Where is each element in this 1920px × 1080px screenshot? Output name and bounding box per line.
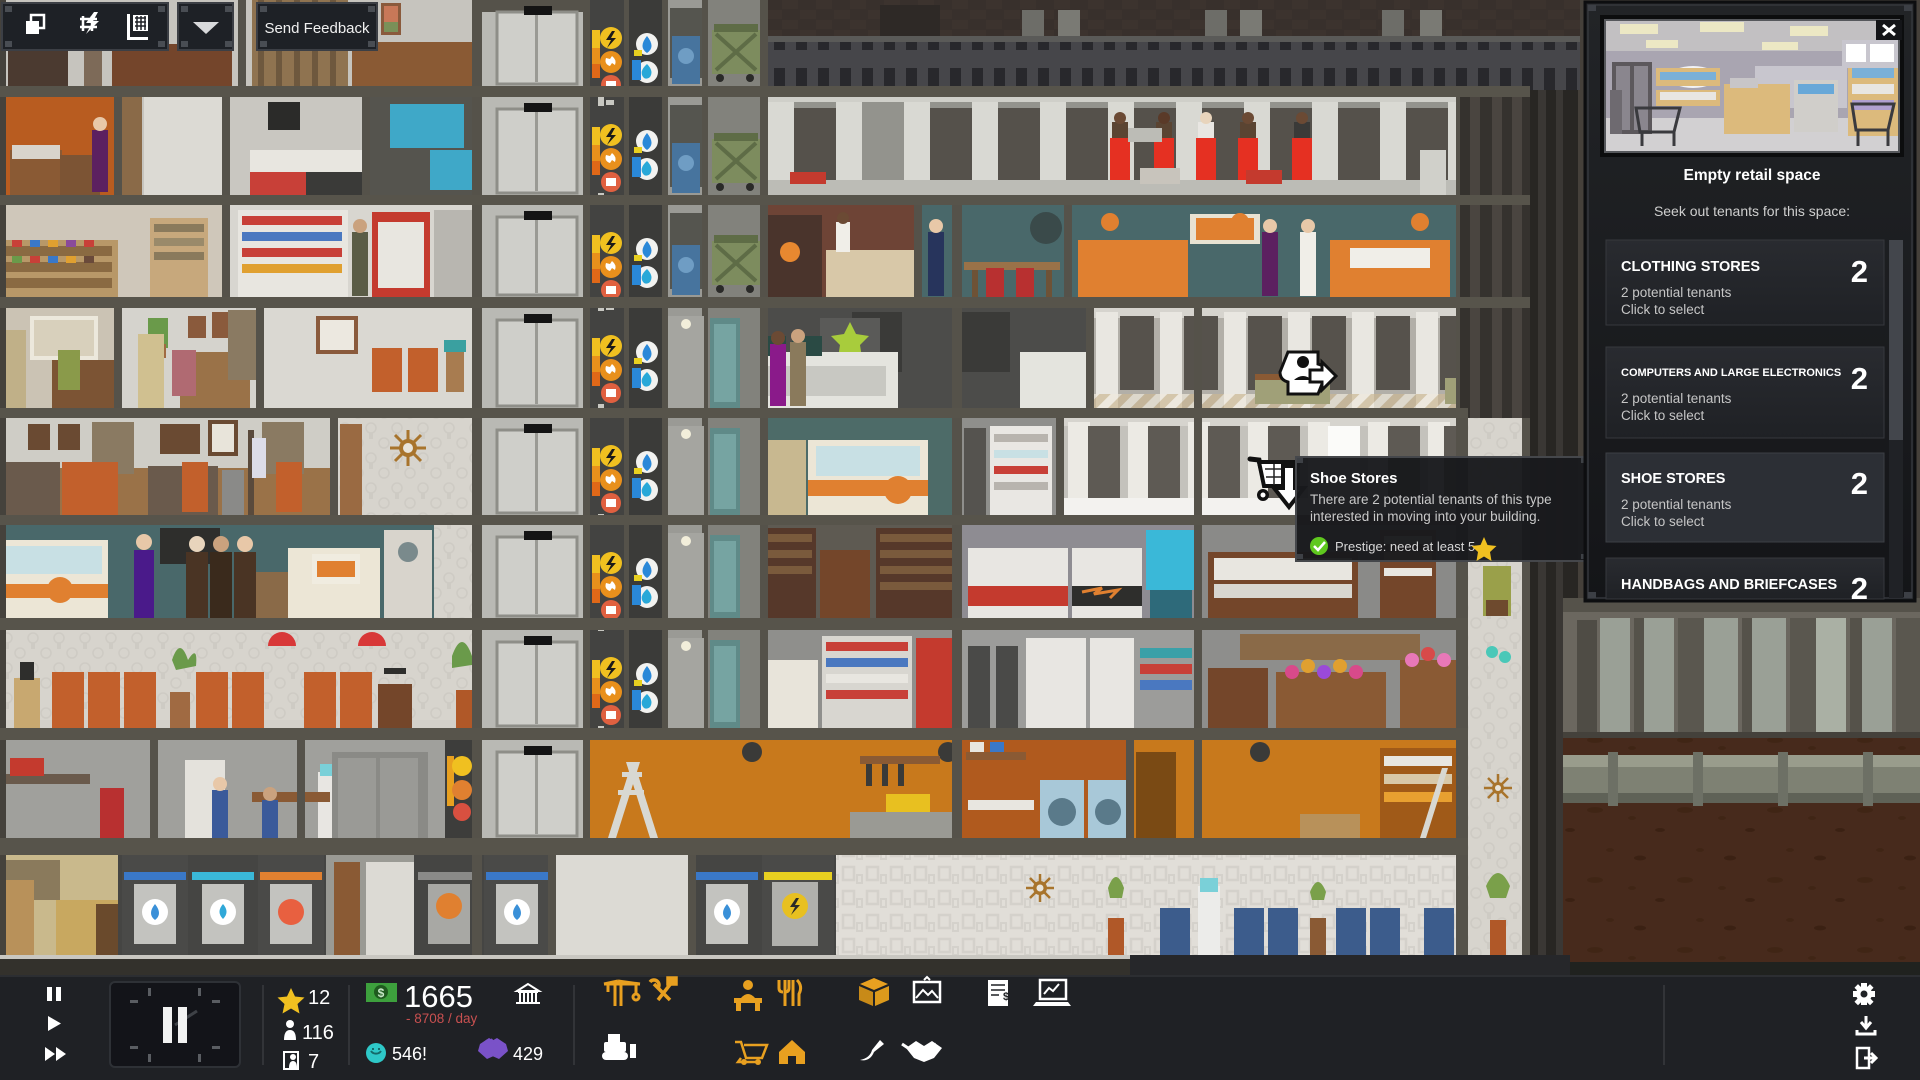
svg-text:116: 116 bbox=[302, 1022, 334, 1044]
svg-text:Click to select: Click to select bbox=[1621, 514, 1705, 529]
svg-text:Empty retail space: Empty retail space bbox=[1684, 167, 1821, 184]
svg-text:2 potential tenants: 2 potential tenants bbox=[1621, 391, 1732, 406]
svg-text:429: 429 bbox=[513, 1044, 543, 1064]
svg-text:1665: 1665 bbox=[404, 979, 473, 1014]
svg-text:interested in moving into your: interested in moving into your building. bbox=[1310, 509, 1540, 524]
svg-text:2 potential tenants: 2 potential tenants bbox=[1621, 285, 1732, 300]
svg-text:HANDBAGS AND BRIEFCASES: HANDBAGS AND BRIEFCASES bbox=[1621, 577, 1837, 593]
svg-text:There are 2 potential tenants: There are 2 potential tenants of this ty… bbox=[1310, 492, 1552, 507]
svg-text:Click to select: Click to select bbox=[1621, 408, 1705, 423]
svg-text:2: 2 bbox=[1851, 466, 1868, 501]
svg-text:2: 2 bbox=[1851, 571, 1868, 606]
svg-text:$: $ bbox=[1003, 991, 1009, 1003]
svg-text:Seek out tenants for this spac: Seek out tenants for this space: bbox=[1654, 203, 1850, 219]
svg-text:546!: 546! bbox=[392, 1044, 427, 1064]
svg-text:12: 12 bbox=[308, 987, 330, 1009]
svg-text:- 8708 / day: - 8708 / day bbox=[406, 1011, 478, 1026]
svg-text:7: 7 bbox=[308, 1051, 319, 1073]
svg-text:Click to select: Click to select bbox=[1621, 302, 1705, 317]
svg-text:Send Feedback: Send Feedback bbox=[264, 20, 370, 37]
svg-text:COMPUTERS AND LARGE ELECTRONIC: COMPUTERS AND LARGE ELECTRONICS bbox=[1621, 367, 1841, 379]
svg-text:SHOE STORES: SHOE STORES bbox=[1621, 471, 1726, 487]
svg-text:Prestige: need at least 5: Prestige: need at least 5 bbox=[1335, 539, 1475, 554]
svg-text:2: 2 bbox=[1851, 254, 1868, 289]
svg-text:2 potential tenants: 2 potential tenants bbox=[1621, 497, 1732, 512]
svg-text:CLOTHING STORES: CLOTHING STORES bbox=[1621, 259, 1760, 275]
svg-text:$: $ bbox=[378, 986, 385, 1000]
svg-text:Shoe Stores: Shoe Stores bbox=[1310, 470, 1398, 487]
svg-text:2: 2 bbox=[1851, 361, 1868, 396]
